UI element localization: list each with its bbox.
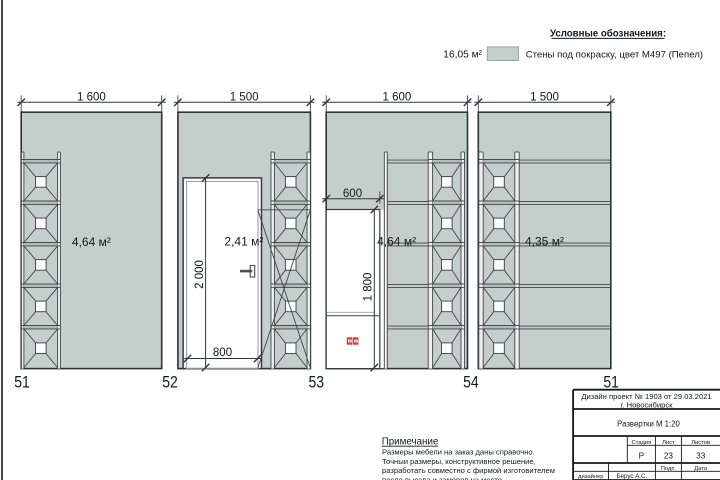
svg-text:Точныи размеры, конструктивное: Точныи размеры, конструктивное решение,: [382, 457, 536, 466]
svg-text:33: 33: [696, 452, 706, 461]
svg-text:Берус А.С.: Берус А.С.: [617, 473, 648, 480]
svg-text:53: 53: [309, 373, 325, 391]
svg-text:51: 51: [603, 373, 619, 391]
svg-text:после выезда и замеров на мест: после выезда и замеров на месте.: [382, 475, 504, 480]
svg-text:Размеры мебели на заказ даны с: Размеры мебели на заказ даны справочно.: [382, 448, 535, 457]
svg-text:Стадия: Стадия: [632, 440, 652, 446]
svg-text:1 500: 1 500: [230, 92, 259, 104]
svg-text:разработать совместно с фирмой: разработать совместно с фирмой изготовит…: [382, 466, 555, 475]
svg-text:Стены под покраску, цвет М497: Стены под покраску, цвет М497 (Пепел): [526, 50, 703, 61]
svg-text:Подп.: Подп.: [661, 466, 677, 472]
svg-text:Лист: Лист: [662, 440, 675, 446]
svg-text:51: 51: [14, 373, 30, 391]
svg-text:54: 54: [463, 373, 479, 391]
svg-text:4,64 м²: 4,64 м²: [72, 235, 111, 249]
svg-text:16,05 м²: 16,05 м²: [443, 50, 482, 61]
svg-text:1 600: 1 600: [383, 92, 412, 104]
svg-text:г. Новосибирск: г. Новосибирск: [621, 400, 674, 409]
svg-text:800: 800: [213, 347, 232, 359]
svg-text:Развертки М 1:20: Развертки М 1:20: [617, 420, 680, 429]
svg-text:дизайнер: дизайнер: [578, 473, 603, 480]
svg-text:600: 600: [343, 188, 362, 200]
svg-text:1 600: 1 600: [77, 92, 106, 104]
svg-text:Листов: Листов: [691, 440, 710, 446]
svg-text:1 800: 1 800: [362, 273, 374, 302]
svg-text:23: 23: [664, 452, 674, 461]
svg-text:2 000: 2 000: [194, 260, 206, 289]
svg-text:1 500: 1 500: [530, 92, 559, 104]
svg-text:Р: Р: [639, 452, 645, 461]
svg-text:52: 52: [162, 373, 178, 391]
svg-text:4,35 м²: 4,35 м²: [525, 234, 564, 248]
svg-text:4,64 м²: 4,64 м²: [377, 234, 416, 248]
svg-text:2,41 м²: 2,41 м²: [224, 234, 263, 248]
svg-text:Дата: Дата: [694, 466, 708, 472]
